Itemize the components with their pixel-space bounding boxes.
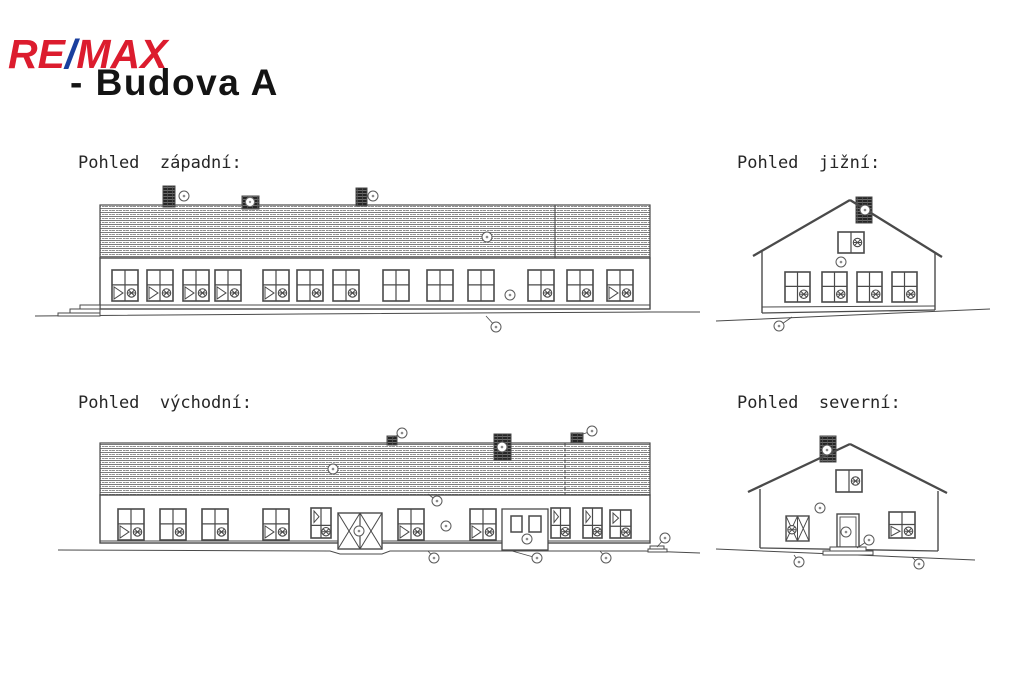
small-window bbox=[511, 516, 522, 532]
steps bbox=[80, 305, 100, 309]
casement-symbol bbox=[853, 238, 861, 246]
north-elevation-drawing bbox=[716, 436, 975, 569]
casement-symbol bbox=[413, 528, 421, 536]
callout-marker bbox=[486, 316, 501, 332]
callout-marker bbox=[512, 551, 542, 563]
casement-symbol bbox=[582, 289, 590, 297]
steps bbox=[70, 309, 100, 313]
callout-marker bbox=[328, 464, 338, 474]
casement-symbol bbox=[217, 528, 225, 536]
casement-symbol bbox=[133, 528, 141, 536]
callout-marker bbox=[441, 521, 451, 531]
casement-symbol bbox=[322, 528, 330, 536]
roof-edge bbox=[753, 200, 850, 256]
callout-marker bbox=[836, 257, 846, 267]
window bbox=[889, 512, 915, 538]
callout-marker bbox=[428, 551, 439, 563]
callout-marker bbox=[860, 205, 870, 215]
building bbox=[716, 436, 975, 569]
window bbox=[857, 272, 882, 302]
steps bbox=[58, 313, 100, 316]
building bbox=[716, 197, 990, 331]
window bbox=[215, 270, 241, 301]
chimney bbox=[356, 188, 367, 206]
casement-symbol bbox=[127, 289, 135, 297]
casement-symbol bbox=[198, 289, 206, 297]
ground-line bbox=[35, 312, 700, 316]
casement-symbol bbox=[312, 289, 320, 297]
chimney bbox=[163, 186, 175, 207]
window bbox=[427, 270, 453, 301]
elevation-drawings-canvas bbox=[0, 0, 1024, 690]
window bbox=[147, 270, 173, 301]
callout-marker bbox=[600, 551, 611, 563]
callout-marker bbox=[774, 317, 792, 331]
window bbox=[610, 510, 631, 538]
casement-symbol bbox=[175, 528, 183, 536]
callout-marker bbox=[522, 534, 532, 544]
south-elevation-drawing bbox=[716, 197, 990, 331]
casement-symbol bbox=[622, 289, 630, 297]
building bbox=[58, 426, 700, 563]
window bbox=[607, 270, 633, 301]
casement-symbol bbox=[837, 290, 845, 298]
west-elevation-drawing bbox=[35, 186, 700, 332]
window bbox=[383, 270, 409, 301]
callout-marker bbox=[794, 555, 804, 567]
callout-marker bbox=[580, 426, 597, 436]
callout-marker bbox=[505, 290, 515, 300]
window bbox=[333, 270, 359, 301]
callout-marker bbox=[482, 232, 492, 242]
window bbox=[112, 270, 138, 301]
callout-marker bbox=[912, 557, 924, 569]
callout-marker bbox=[822, 445, 832, 455]
casement-symbol bbox=[788, 526, 796, 534]
window bbox=[583, 508, 602, 538]
window bbox=[263, 270, 289, 301]
casement-symbol bbox=[872, 290, 880, 298]
casement-symbol bbox=[904, 527, 912, 535]
casement-symbol bbox=[851, 477, 859, 485]
window bbox=[785, 272, 810, 302]
window bbox=[551, 508, 570, 538]
casement-symbol bbox=[907, 290, 915, 298]
window bbox=[470, 509, 496, 540]
roof bbox=[100, 443, 650, 495]
window bbox=[297, 270, 323, 301]
callout-marker bbox=[179, 191, 189, 201]
callout-marker bbox=[497, 442, 507, 452]
window bbox=[892, 272, 917, 302]
roof-edge bbox=[850, 444, 947, 493]
window bbox=[118, 509, 144, 540]
door-steps bbox=[823, 551, 873, 555]
casement-symbol bbox=[593, 528, 601, 536]
callout-marker bbox=[368, 191, 378, 201]
window bbox=[202, 509, 228, 540]
window bbox=[311, 508, 331, 538]
drawing-sheet: RE/MAX - Budova A Pohled západní: Pohled… bbox=[0, 0, 1024, 690]
window bbox=[468, 270, 494, 301]
window bbox=[160, 509, 186, 540]
window bbox=[836, 470, 862, 492]
east-elevation-drawing bbox=[58, 426, 700, 563]
callout-marker bbox=[815, 503, 825, 513]
callout-marker bbox=[354, 526, 364, 536]
casement-symbol bbox=[543, 289, 551, 297]
roof-edge bbox=[748, 444, 850, 492]
casement-symbol bbox=[800, 290, 808, 298]
small-window bbox=[529, 516, 541, 532]
casement-symbol bbox=[561, 528, 569, 536]
vent-circle bbox=[246, 198, 255, 207]
window bbox=[263, 509, 289, 540]
callout-marker bbox=[392, 428, 407, 438]
window bbox=[398, 509, 424, 540]
door-steps bbox=[830, 547, 866, 551]
casement-symbol bbox=[278, 528, 286, 536]
callout-marker bbox=[841, 527, 851, 537]
callout-marker bbox=[657, 533, 670, 547]
window bbox=[183, 270, 209, 301]
casement-symbol bbox=[622, 528, 630, 536]
window bbox=[822, 272, 847, 302]
casement-symbol bbox=[162, 289, 170, 297]
casement-symbol bbox=[348, 289, 356, 297]
casement-symbol bbox=[278, 289, 286, 297]
shuttered-window bbox=[786, 516, 809, 541]
steps bbox=[648, 549, 667, 552]
window bbox=[567, 270, 593, 301]
roof bbox=[100, 205, 650, 258]
window bbox=[838, 232, 864, 253]
casement-symbol bbox=[230, 289, 238, 297]
chimney bbox=[387, 436, 397, 445]
building bbox=[35, 186, 700, 332]
casement-symbol bbox=[485, 528, 493, 536]
window bbox=[528, 270, 554, 301]
